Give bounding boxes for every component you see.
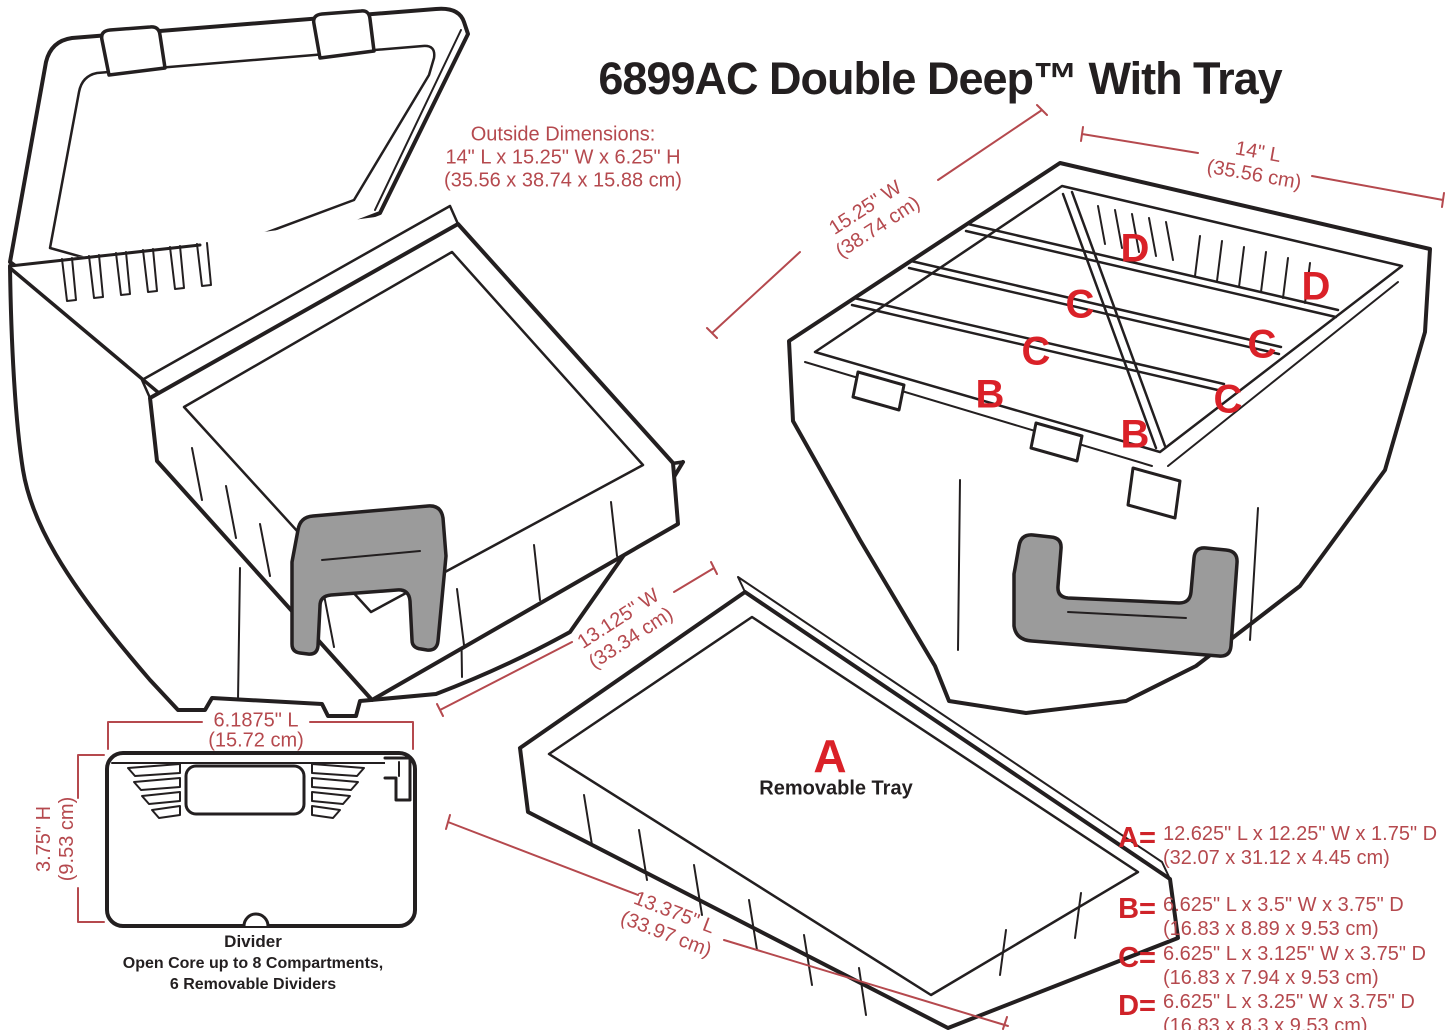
legend-entry: 6.625" L x 3.125" W x 3.75" D (16.83 x 7… [1163,943,1426,990]
legend-entry: 6.625" L x 3.25" W x 3.75" D (16.83 x 8.… [1163,991,1415,1030]
legend-cm: (16.83 x 8.3 x 9.53 cm) [1163,1015,1415,1030]
divider-notch [244,914,268,926]
compartment-label: B [1121,413,1150,458]
divider-note-line1: Open Core up to 8 Compartments, [123,955,383,973]
legend-entry: 6.625" L x 3.5" W x 3.75" D (16.83 x 8.8… [1163,894,1404,941]
lid-latch-tab [314,11,374,58]
divider-box-figure [789,163,1430,713]
legend-cm: (32.07 x 31.12 x 4.45 cm) [1163,847,1437,871]
divider-note-line2: 6 Removable Dividers [170,976,336,994]
legend-key: B= [1108,893,1156,926]
legend-inches: 12.625" L x 12.25" W x 1.75" D [1163,823,1437,847]
page-title: 6899AC Double Deep™ With Tray [598,53,1281,105]
dimension-inches: 3.75" H [33,797,56,881]
legend-cm: (16.83 x 8.89 x 9.53 cm) [1163,918,1404,942]
legend-inches: 6.625" L x 3.25" W x 3.75" D [1163,991,1415,1015]
compartment-label: B [976,373,1005,418]
dimension-cm: (9.53 cm) [56,797,79,881]
compartment-label: D [1121,227,1150,272]
lid-latch-tab [102,27,165,75]
legend-inches: 6.625" L x 3.5" W x 3.75" D [1163,894,1404,918]
divider-height-dimension: 3.75" H (9.53 cm) [33,797,79,881]
open-box-figure [10,9,683,716]
diagram-canvas: 6899AC Double Deep™ With Tray Outside Di… [0,0,1445,1030]
legend-entry: 12.625" L x 12.25" W x 1.75" D (32.07 x … [1163,823,1437,870]
divider-panel-figure [107,753,415,926]
legend-key: A= [1108,822,1156,855]
outside-dimensions-heading: Outside Dimensions: [471,124,656,147]
legend-cm: (16.83 x 7.94 x 9.53 cm) [1163,967,1426,991]
compartment-label: C [1248,323,1277,368]
legend-key: C= [1108,942,1156,975]
legend-key: D= [1108,990,1156,1023]
outside-dimensions-inches: 14" L x 15.25" W x 6.25" H [445,147,680,170]
tray-letter: A [813,729,846,783]
compartment-label: C [1214,378,1243,423]
divider-caption: Divider [224,932,282,952]
compartment-label: D [1302,265,1331,310]
divider-length-cm: (15.72 cm) [208,730,304,753]
compartment-label: C [1022,330,1051,375]
outside-dimensions-cm: (35.56 x 38.74 x 15.88 cm) [444,170,682,193]
compartment-label: C [1066,283,1095,328]
tray-caption: Removable Tray [759,778,912,801]
legend-inches: 6.625" L x 3.125" W x 3.75" D [1163,943,1426,967]
